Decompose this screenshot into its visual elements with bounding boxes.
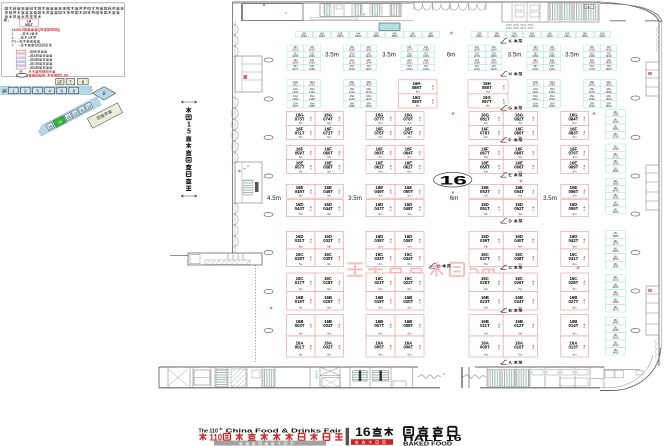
svg-text:3.5m: 3.5m (508, 52, 522, 59)
svg-text:190O: 190O (494, 34, 500, 38)
svg-text:181O: 181O (301, 34, 307, 38)
svg-text:6m: 6m (379, 212, 384, 216)
svg-text:3.5m: 3.5m (565, 52, 579, 59)
svg-text:BAKED FOOD: BAKED FOOD (403, 441, 452, 446)
svg-text:2F: 2F (57, 79, 62, 84)
svg-text:006T: 006T (403, 345, 413, 350)
svg-text:111O: 111O (349, 54, 355, 58)
svg-text:037T: 037T (480, 256, 490, 261)
svg-text:6m: 6m (573, 121, 578, 125)
svg-text:131O: 131O (474, 67, 480, 71)
svg-text:6m: 6m (408, 135, 413, 139)
svg-text:6m: 6m (299, 262, 304, 266)
svg-text:033T: 033T (374, 256, 384, 261)
svg-text:6m: 6m (450, 195, 459, 202)
svg-text:009T: 009T (480, 345, 490, 350)
svg-text:127O: 127O (474, 54, 480, 58)
svg-text:135O: 135O (292, 97, 298, 101)
svg-text:032T: 032T (323, 238, 333, 243)
svg-text:6m: 6m (573, 332, 578, 336)
svg-text:6m: 6m (573, 135, 578, 139)
svg-text:6m: 6m (518, 155, 523, 159)
svg-text:6m: 6m (573, 306, 578, 310)
svg-text:125O: 125O (474, 48, 480, 52)
svg-text:161O: 161O (612, 210, 618, 214)
svg-text:035T: 035T (374, 238, 384, 243)
svg-text:144O: 144O (605, 54, 611, 58)
svg-text:007T: 007T (374, 323, 384, 328)
svg-text:6m: 6m (408, 194, 413, 198)
svg-text:6m: 6m (327, 262, 332, 266)
svg-text:041T: 041T (569, 256, 579, 261)
svg-text:154O: 154O (612, 265, 618, 269)
svg-text:192O: 192O (529, 34, 535, 38)
svg-text:—: — (19, 43, 21, 47)
svg-text:194O: 194O (564, 34, 570, 38)
svg-text:001T: 001T (25, 23, 34, 27)
svg-text:004T: 004T (323, 323, 333, 328)
svg-text:196O: 196O (599, 34, 605, 38)
svg-text:156O: 156O (605, 83, 611, 87)
svg-text:116O: 116O (366, 67, 372, 71)
svg-text:6m: 6m (484, 121, 489, 125)
svg-text:187O: 187O (409, 34, 415, 38)
svg-text:153O: 153O (532, 104, 538, 108)
svg-text:5m: 5m (299, 353, 304, 357)
svg-text:158O: 158O (612, 234, 618, 238)
svg-text:6m: 6m (486, 90, 491, 94)
svg-text:6m: 6m (299, 287, 304, 291)
svg-text:138O: 138O (549, 60, 555, 64)
svg-text:6m: 6m (573, 169, 578, 173)
svg-text:134O: 134O (309, 90, 315, 94)
svg-text:6m: 6m (408, 287, 413, 291)
svg-text:051T: 051T (480, 206, 490, 211)
svg-text:034T: 034T (403, 256, 413, 261)
svg-text:120O: 120O (423, 54, 429, 58)
svg-text:3.5m: 3.5m (382, 52, 396, 59)
svg-text:6m: 6m (484, 353, 489, 357)
svg-text:123O: 123O (406, 67, 412, 71)
svg-text:031T: 031T (295, 238, 305, 243)
svg-text:144O: 144O (612, 321, 618, 325)
svg-text:171O: 171O (612, 154, 618, 158)
svg-text:130O: 130O (490, 60, 496, 64)
svg-text:6m: 6m (573, 262, 578, 266)
svg-text:134O: 134O (549, 48, 555, 52)
svg-text:6m: 6m (486, 104, 491, 108)
svg-text:121O: 121O (406, 60, 412, 64)
svg-text:5m: 5m (299, 212, 304, 216)
svg-text:162O: 162O (605, 104, 611, 108)
svg-text:189O: 189O (476, 34, 482, 38)
svg-text:5m: 5m (299, 121, 304, 125)
svg-text:188O: 188O (428, 34, 434, 38)
svg-text:6m: 6m (379, 155, 384, 159)
svg-text:6m: 6m (408, 245, 413, 249)
svg-text:172O: 172O (612, 147, 618, 151)
svg-text:6m: 6m (379, 287, 384, 291)
svg-text:129O: 129O (474, 60, 480, 64)
svg-text:183O: 183O (337, 34, 343, 38)
svg-text:6m: 6m (408, 212, 413, 216)
svg-text:163O: 163O (612, 196, 618, 200)
svg-text:6m: 6m (379, 135, 384, 139)
svg-text:115O: 115O (349, 67, 355, 71)
svg-text:6m: 6m (518, 262, 523, 266)
svg-text:5: 5 (187, 129, 191, 136)
svg-text:138O: 138O (309, 104, 315, 108)
svg-text:128O: 128O (490, 54, 496, 58)
svg-text:159O: 159O (589, 97, 595, 101)
svg-text:126O: 126O (490, 48, 496, 52)
svg-text:149O: 149O (612, 293, 618, 297)
svg-text:017T: 017T (295, 280, 305, 285)
svg-text:143O: 143O (349, 97, 355, 101)
svg-text:6m: 6m (379, 245, 384, 249)
svg-text:140O: 140O (549, 67, 555, 71)
svg-text:16: 16 (355, 425, 371, 439)
svg-text:139O: 139O (349, 83, 355, 87)
svg-text:013T: 013T (569, 345, 579, 350)
svg-text:6m: 6m (379, 121, 384, 125)
svg-text:139O: 139O (532, 67, 538, 71)
svg-text:F: F (509, 138, 512, 143)
svg-text:5m: 5m (299, 332, 304, 336)
svg-text:170O: 170O (612, 162, 618, 166)
svg-text:114O: 114O (366, 60, 372, 64)
svg-text:131O: 131O (292, 83, 298, 87)
svg-text:6m: 6m (408, 353, 413, 357)
svg-text:6m: 6m (484, 245, 489, 249)
svg-text:6m: 6m (484, 306, 489, 310)
svg-text:151O: 151O (532, 97, 538, 101)
svg-text:8400 8400 8400 8400: 8400 8400 8400 8400 (506, 26, 534, 30)
svg-text:1F: 1F (2, 88, 7, 93)
svg-text:EL: EL (587, 5, 591, 9)
svg-text:6m: 6m (379, 306, 384, 310)
svg-text:052T: 052T (514, 206, 524, 211)
svg-text:135O: 135O (532, 54, 538, 58)
svg-text:6m: 6m (484, 332, 489, 336)
svg-text:142O: 142O (605, 48, 611, 52)
svg-text:6m: 6m (408, 155, 413, 159)
svg-text:150O: 150O (549, 90, 555, 94)
svg-text:6m: 6m (573, 194, 578, 198)
svg-text:6m: 6m (484, 212, 489, 216)
svg-text:044T: 044T (323, 206, 333, 211)
svg-text:5m: 5m (299, 155, 304, 159)
svg-text:5m: 5m (327, 212, 332, 216)
svg-text:149O: 149O (532, 90, 538, 94)
svg-text:6m: 6m (408, 262, 413, 266)
svg-text:6m: 6m (484, 194, 489, 198)
svg-text:6m: 6m (408, 169, 413, 173)
svg-text:002T: 002T (323, 345, 333, 350)
svg-text:024T: 024T (514, 299, 524, 304)
svg-text:6m: 6m (484, 169, 489, 173)
svg-text:108O: 108O (309, 67, 315, 71)
svg-text:104O: 104O (309, 54, 315, 58)
svg-text:184O: 184O (355, 34, 361, 38)
svg-text:3.5m: 3.5m (325, 52, 339, 59)
svg-text:th: th (220, 427, 223, 431)
svg-text:1: 1 (187, 122, 191, 129)
svg-text:141O: 141O (612, 343, 618, 347)
svg-text:6m: 6m (518, 353, 523, 357)
svg-text:011T: 011T (480, 323, 490, 328)
svg-text:048T: 048T (403, 206, 413, 211)
svg-text:132O: 132O (309, 83, 315, 87)
svg-text:036T: 036T (403, 238, 413, 243)
svg-text:6m: 6m (408, 121, 413, 125)
svg-text:136O: 136O (309, 97, 315, 101)
svg-text:001T: 001T (295, 345, 305, 350)
svg-text:154O: 154O (549, 104, 555, 108)
svg-text:155O: 155O (612, 257, 618, 261)
svg-text:141O: 141O (349, 90, 355, 94)
svg-text:155O: 155O (589, 83, 595, 87)
svg-text:5m: 5m (299, 194, 304, 198)
svg-text:145O: 145O (589, 60, 595, 64)
svg-text:133O: 133O (532, 48, 538, 52)
svg-text:6m: 6m (416, 90, 421, 94)
svg-text:5m: 5m (299, 169, 304, 173)
svg-text:005T: 005T (374, 345, 384, 350)
svg-text:117O: 117O (406, 48, 412, 52)
svg-text:026T: 026T (514, 280, 524, 285)
svg-text:157O: 157O (612, 241, 618, 245)
svg-text:047T: 047T (374, 206, 384, 211)
svg-text:5m: 5m (327, 194, 332, 198)
svg-text:027T: 027T (569, 299, 579, 304)
svg-text:6m: 6m (573, 287, 578, 291)
svg-text:6m: 6m (484, 287, 489, 291)
svg-text:143O: 143O (612, 328, 618, 332)
svg-text:6m: 6m (447, 52, 456, 59)
svg-text:6m: 6m (408, 332, 413, 336)
svg-text:6m: 6m (573, 212, 578, 216)
svg-text:112O: 112O (366, 54, 372, 58)
svg-text:140O: 140O (365, 83, 371, 87)
svg-text:148O: 148O (612, 300, 618, 304)
svg-text:157O: 157O (589, 90, 595, 94)
svg-text:6m: 6m (484, 155, 489, 159)
svg-text:146O: 146O (365, 104, 371, 108)
svg-text:029T: 029T (295, 256, 305, 261)
svg-text:039T: 039T (480, 238, 490, 243)
svg-text:6m: 6m (299, 306, 304, 310)
svg-text:6m: 6m (484, 135, 489, 139)
svg-text:142O: 142O (365, 90, 371, 94)
svg-text:008T: 008T (403, 323, 413, 328)
svg-text:043T: 043T (295, 206, 305, 211)
svg-text:103O: 103O (292, 54, 298, 58)
svg-text:145O: 145O (349, 104, 355, 108)
svg-text:012T: 012T (514, 323, 524, 328)
svg-text:1: 1 (29, 32, 31, 36)
svg-text:030T: 030T (323, 256, 333, 261)
svg-text:014T: 014T (569, 323, 579, 328)
svg-text:6m: 6m (518, 121, 523, 125)
svg-text:055T: 055T (569, 206, 579, 211)
svg-text:6m: 6m (416, 104, 421, 108)
svg-text:6m: 6m (327, 245, 332, 249)
svg-text:6m: 6m (518, 169, 523, 173)
svg-text:16: 16 (440, 173, 468, 187)
svg-text:119O: 119O (406, 54, 412, 58)
svg-text:5m: 5m (327, 332, 332, 336)
svg-text:3.5m: 3.5m (348, 195, 362, 202)
svg-text:195O: 195O (582, 34, 588, 38)
svg-text:158O: 158O (605, 90, 611, 94)
svg-text:191O: 191O (511, 34, 517, 38)
svg-text:178O: 178O (612, 113, 618, 117)
svg-text:6m: 6m (518, 287, 523, 291)
svg-text:177O: 177O (612, 120, 618, 124)
svg-text:G: G (509, 106, 513, 111)
svg-text:5m: 5m (299, 135, 304, 139)
svg-text:152O: 152O (549, 97, 555, 101)
svg-text:016T: 016T (323, 299, 333, 304)
svg-text:6m: 6m (518, 332, 523, 336)
svg-text:5m: 5m (327, 135, 332, 139)
svg-text:6m: 6m (379, 332, 384, 336)
svg-text:038T: 038T (514, 256, 524, 261)
svg-text:147O: 147O (589, 67, 595, 71)
svg-text:6m: 6m (408, 306, 413, 310)
svg-text:6m: 6m (518, 194, 523, 198)
svg-text:147O: 147O (612, 308, 618, 312)
svg-text:6m: 6m (518, 212, 523, 216)
svg-text:148O: 148O (605, 67, 611, 71)
svg-text:164O: 164O (612, 189, 618, 193)
svg-text:5m: 5m (327, 121, 332, 125)
svg-text:106O: 106O (309, 60, 315, 64)
svg-text:169O: 169O (612, 169, 618, 173)
svg-text:132O: 132O (490, 67, 496, 71)
svg-text:021T: 021T (374, 280, 384, 285)
svg-text:6m: 6m (573, 245, 578, 249)
svg-text:6m: 6m (327, 287, 332, 291)
svg-text:160O: 160O (605, 97, 611, 101)
svg-text:5m: 5m (327, 169, 332, 173)
svg-text:193O: 193O (546, 34, 552, 38)
svg-text:028T: 028T (569, 280, 579, 285)
svg-text:042T: 042T (569, 238, 579, 243)
svg-text:148O: 148O (549, 83, 555, 87)
svg-text:018T: 018T (323, 280, 333, 285)
svg-text:162O: 162O (612, 203, 618, 207)
svg-text:6m: 6m (573, 353, 578, 357)
svg-text:176O: 176O (612, 127, 618, 131)
svg-text:6m: 6m (327, 306, 332, 310)
svg-text:6m: 6m (379, 169, 384, 173)
svg-text:143O: 143O (589, 54, 595, 58)
svg-text:105O: 105O (292, 60, 298, 64)
svg-text:186O: 186O (391, 34, 397, 38)
svg-text:122O: 122O (423, 60, 429, 64)
svg-text:151O: 151O (612, 278, 618, 282)
svg-text:150O: 150O (612, 285, 618, 289)
svg-text:136O: 136O (549, 54, 555, 58)
svg-text:140O: 140O (612, 351, 618, 355)
svg-text:6m: 6m (518, 245, 523, 249)
svg-text:5m: 5m (327, 155, 332, 159)
svg-text:023T: 023T (480, 299, 490, 304)
svg-text:161O: 161O (589, 104, 595, 108)
svg-text:6m: 6m (379, 262, 384, 266)
svg-text:109O: 109O (349, 48, 355, 52)
svg-text:107O: 107O (292, 67, 298, 71)
svg-text:003T: 003T (295, 323, 305, 328)
svg-text:175O: 175O (612, 134, 618, 138)
svg-text:156O: 156O (612, 249, 618, 253)
svg-text:040T: 040T (514, 238, 524, 243)
svg-text:015T: 015T (295, 299, 305, 304)
svg-text:—: — (29, 66, 31, 70)
svg-text:118O: 118O (423, 48, 429, 52)
svg-text:102O: 102O (309, 48, 315, 52)
svg-text:019T: 019T (374, 299, 384, 304)
svg-text:137O: 137O (532, 60, 538, 64)
svg-text:6m: 6m (299, 245, 304, 249)
svg-text:020T: 020T (403, 299, 413, 304)
svg-text:165O: 165O (612, 182, 618, 186)
svg-text:144O: 144O (365, 97, 371, 101)
svg-text:4.5m: 4.5m (267, 195, 281, 202)
svg-text:124O: 124O (423, 67, 429, 71)
svg-text:182O: 182O (319, 34, 325, 38)
svg-text:133O: 133O (292, 90, 298, 94)
svg-text:113O: 113O (349, 60, 355, 64)
svg-text:146O: 146O (605, 60, 611, 64)
svg-text:E: E (509, 173, 512, 178)
svg-text:022T: 022T (403, 280, 413, 285)
svg-text:6m: 6m (379, 194, 384, 198)
svg-text:142O: 142O (612, 336, 618, 340)
svg-text:5m: 5m (327, 353, 332, 357)
svg-text:147O: 147O (532, 83, 538, 87)
svg-text:—: — (21, 32, 23, 36)
svg-text::: : (7, 18, 9, 23)
svg-text:137O: 137O (292, 104, 298, 108)
svg-text:6m: 6m (573, 155, 578, 159)
svg-text:1.3m: 1.3m (61, 74, 69, 78)
svg-text:101O: 101O (292, 48, 298, 52)
svg-text:110O: 110O (366, 48, 372, 52)
svg-text:010T: 010T (514, 345, 524, 350)
svg-text:6m: 6m (484, 262, 489, 266)
svg-text:025T: 025T (480, 280, 490, 285)
svg-text:185O: 185O (373, 34, 379, 38)
svg-text:141O: 141O (589, 48, 595, 52)
svg-text:3.5m: 3.5m (543, 195, 557, 202)
svg-text:6m: 6m (379, 353, 384, 357)
